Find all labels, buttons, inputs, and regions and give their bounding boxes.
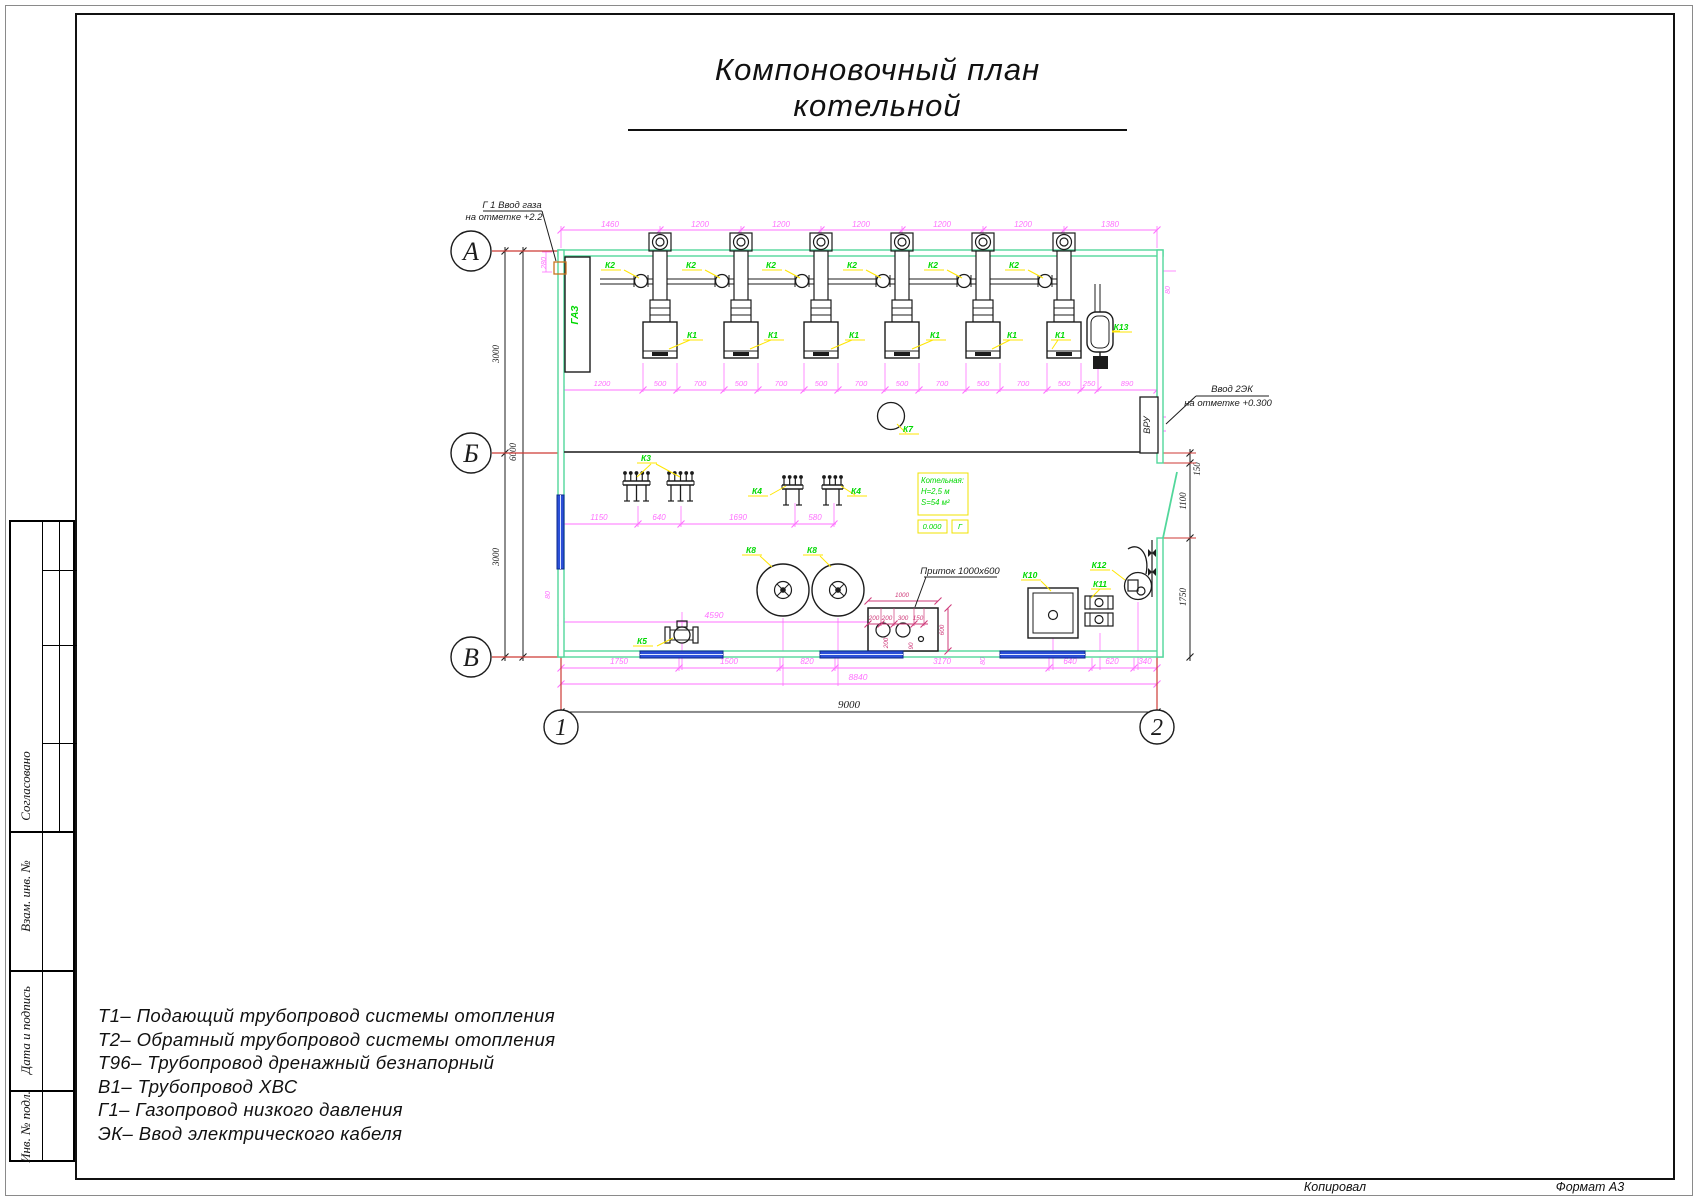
dim-label: 8840 xyxy=(849,672,868,682)
dim-label: 150 xyxy=(913,615,924,622)
dim-label: 250 xyxy=(1082,379,1096,388)
equipment-label-К1: К1 xyxy=(930,330,940,340)
legend-line: Т2– Обратный трубопровод системы отоплен… xyxy=(98,1028,555,1052)
dim-label: 700 xyxy=(775,379,788,388)
axis-bubble-В: В xyxy=(463,643,479,672)
dim-label: 1750 xyxy=(1178,588,1188,607)
stamp-sidebar: Согласовано Взам. инв. № Дата и подпись … xyxy=(9,520,75,1162)
dim-label: 80 xyxy=(1165,286,1172,294)
equipment-label-К1: К1 xyxy=(1007,330,1017,340)
room-height: Н=2,5 м xyxy=(921,487,950,496)
equipment-label-К2: К2 xyxy=(605,260,615,270)
dim-label: 500 xyxy=(1058,379,1071,388)
equipment-label-К1: К1 xyxy=(849,330,859,340)
equipment-label-К2: К2 xyxy=(1009,260,1019,270)
dim-label: 300 xyxy=(898,615,909,622)
dim-label: 500 xyxy=(654,379,667,388)
equipment-label-К11: К11 xyxy=(1093,579,1107,589)
dim-label: 620 xyxy=(1105,657,1119,666)
equipment-label-К12: К12 xyxy=(1092,560,1107,570)
legend-line: Т96– Трубопровод дренажный безнапорный xyxy=(98,1051,555,1075)
equipment-label-К8: К8 xyxy=(807,545,817,555)
legend-line: В1– Трубопровод ХВС xyxy=(98,1075,555,1099)
dim-label: 3170 xyxy=(933,657,951,666)
dim-label: 80 xyxy=(545,591,552,599)
dim-label: 640 xyxy=(652,513,666,522)
dim-label: 200 xyxy=(883,637,890,649)
sidebar-label-vzam: Взам. инв. № xyxy=(11,826,41,966)
equipment-label-К4: К4 xyxy=(851,486,861,496)
cable-inlet-note: Ввод 2ЭК xyxy=(1211,384,1254,395)
sidebar-divider xyxy=(59,522,60,831)
gas-inlet-note: Г 1 Ввод газа xyxy=(482,200,541,211)
floor-level: 0.000 xyxy=(923,522,943,531)
equipment-label-К3: К3 xyxy=(641,453,651,463)
intake-note: Приток 1000х600 xyxy=(920,566,1000,577)
equipment-label-К1: К1 xyxy=(1055,330,1065,340)
dim-label: 500 xyxy=(977,379,990,388)
sidebar-divider xyxy=(42,570,77,571)
dim-label: 1690 xyxy=(729,513,747,522)
legend-line: Т1– Подающий трубопровод системы отоплен… xyxy=(98,1004,555,1028)
dim-label: 1150 xyxy=(590,513,608,522)
dim-label: 9000 xyxy=(838,699,861,711)
dim-label: 80 xyxy=(980,657,987,665)
sidebar-divider xyxy=(42,522,43,1160)
dim-label: 3000 xyxy=(491,548,501,568)
room-name: Котельная: xyxy=(921,476,964,485)
dim-label: 500 xyxy=(896,379,909,388)
axis-bubble-2: 2 xyxy=(1151,715,1163,741)
dim-label: 700 xyxy=(1017,379,1030,388)
dim-label: 580 xyxy=(808,513,822,522)
dim-label: 200 xyxy=(868,615,880,622)
dim-label: 1200 xyxy=(852,220,870,229)
dim-label: 1200 xyxy=(691,220,709,229)
dim-label: 280 xyxy=(541,257,548,270)
dim-label: 3000 xyxy=(491,345,501,365)
equipment-label-К2: К2 xyxy=(766,260,776,270)
dim-label: 1200 xyxy=(933,220,951,229)
equipment-label-К2: К2 xyxy=(847,260,857,270)
dim-label: 4590 xyxy=(705,610,724,620)
vru-label: ВРУ xyxy=(1142,415,1152,434)
equipment-label-К1: К1 xyxy=(768,330,778,340)
legend-line: ЭК– Ввод электрического кабеля xyxy=(98,1122,555,1146)
dim-label: 820 xyxy=(800,657,814,666)
equipment-label-К5: К5 xyxy=(637,636,647,646)
dim-label: 1460 xyxy=(601,220,619,229)
dim-label: 890 xyxy=(1121,379,1134,388)
equipment-label-К2: К2 xyxy=(686,260,696,270)
equipment-label-К10: К10 xyxy=(1023,570,1038,580)
footer-format: Формат А3 xyxy=(1540,1180,1640,1194)
sidebar-divider xyxy=(42,743,77,744)
axis-bubble-Б: Б xyxy=(462,439,478,468)
gaz-cabinet-label: ГАЗ xyxy=(570,305,581,324)
dim-label: 340 xyxy=(1138,657,1152,666)
sidebar-label-inv: Инв. № подл. xyxy=(11,1057,41,1197)
equipment-label-К1: К1 xyxy=(687,330,697,340)
room-area: S=54 м² xyxy=(921,498,950,507)
legend-line: Г1– Газопровод низкого давления xyxy=(98,1098,555,1122)
dim-label: 90 xyxy=(908,642,915,650)
dim-label: 200 xyxy=(881,615,893,622)
dim-label: 1200 xyxy=(772,220,790,229)
dim-label: 1200 xyxy=(594,379,612,388)
dim-label: 1750 xyxy=(610,657,628,666)
equipment-label-К13: К13 xyxy=(1114,322,1129,332)
gas-inlet-note: на отметке +2.2 xyxy=(465,212,543,223)
dim-label: 1200 xyxy=(1014,220,1032,229)
drawing-sheet: Компоновочный план котельной 14601200120… xyxy=(0,0,1697,1200)
dim-label: 500 xyxy=(815,379,828,388)
dim-label: 500 xyxy=(735,379,748,388)
dim-label: 150 xyxy=(1192,462,1202,476)
axis-bubble-1: 1 xyxy=(555,715,567,741)
pipe-legend: Т1– Подающий трубопровод системы отоплен… xyxy=(98,1004,555,1145)
dim-label: 700 xyxy=(694,379,707,388)
dim-label: 1000 xyxy=(895,592,910,599)
room-letter: Г xyxy=(958,522,963,531)
footer-copied: Копировал xyxy=(1280,1180,1390,1194)
sidebar-divider xyxy=(42,645,77,646)
dim-label: 1380 xyxy=(1101,220,1119,229)
dim-label: 1100 xyxy=(1178,492,1188,510)
equipment-label-К4: К4 xyxy=(752,486,762,496)
equipment-label-К8: К8 xyxy=(746,545,756,555)
dim-label: 700 xyxy=(855,379,868,388)
dim-label: 700 xyxy=(936,379,949,388)
equipment-label-К7: К7 xyxy=(903,424,914,434)
dim-label: 6000 xyxy=(508,443,518,462)
equipment-label-К2: К2 xyxy=(928,260,938,270)
dim-label: 600 xyxy=(939,624,946,635)
cable-inlet-note: на отметке +0.300 xyxy=(1184,398,1272,409)
axis-bubble-А: А xyxy=(461,237,479,266)
